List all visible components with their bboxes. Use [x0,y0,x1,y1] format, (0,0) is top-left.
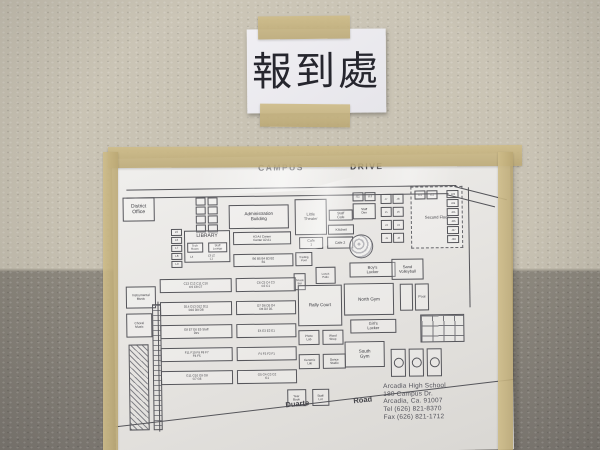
wood-shop-label: Wood Shop [329,334,337,341]
e-row-east-label: E4 E3 E2 E1 [255,329,277,333]
room-j26-label: J26 [451,220,455,223]
room-j8: J8 [392,194,403,204]
e-row-west-label: E8 E7 E6 E5 Staff Dev [183,328,209,335]
trading-post: Trading Post [295,252,312,266]
staff-cafe-label: Staff Cafe [336,211,346,219]
second-floor-block-label: Second Floor [424,215,449,220]
photo-lab-label: Photo Lab [305,334,313,341]
cafe-1-label: Cafe 1 [306,239,316,247]
portable-box [208,215,218,223]
room-j3-label: J3 [385,224,388,227]
room-l8: L8 [171,253,182,260]
school-info-block: Arcadia High School180 Campus Dr.Arcadia… [383,382,446,421]
room-j4: J4 [393,220,404,230]
room-j12-label: J12 [368,195,372,198]
room-j11-label: J11 [356,195,360,198]
map-road-line [112,378,514,428]
room-j27-label: J27 [451,229,455,232]
rally-court-label: Rally Court [308,303,332,308]
cafe-1: Cafe 1 [299,237,323,249]
room-j2: J2 [393,233,404,243]
portable-box [208,206,218,214]
room-l8-label: L8 [175,255,178,258]
f-row-west-label: F11 F10 F9 F8 F7 F6 F5 [184,351,210,358]
school-info-line: Fax (626) 821-1712 [384,413,447,422]
registration-sign-text: 報到處 [252,52,381,93]
room-j5-label: J5 [385,211,388,214]
g-row-east: G5 G4 G3 G2 G1 [237,369,297,384]
room-l7-label: L7 [175,247,178,250]
f-row-east-label: F4 F3 F2 F1 [256,352,278,356]
basketball-court [391,349,406,377]
ceramic-lab: Ceramic Lab [299,354,320,369]
boys-locker: Boy's Locker [349,262,395,278]
amphitheater [349,234,373,258]
c-row-east-label: C6 C5 C4 C3 C2 C1 [255,281,277,288]
portable-box [196,206,206,214]
administration-building-label: Administration Building [242,211,275,222]
portable-box [196,215,206,223]
masking-tape-sign-bottom [260,104,350,128]
room-j7: J7 [380,194,391,204]
room-j6: J6 [393,207,404,217]
school-info-line: Arcadia High School [383,382,446,391]
girls-locker-label: Girl's Locker [362,322,384,331]
room-j8-label: J8 [397,197,400,200]
little-theater: Little Theater [295,199,327,235]
sand-volleyball-label: Sand Volleyball [399,265,416,274]
b-row: B6 B5 B4 B3 B2 B1 [233,253,293,267]
rooms-l3-l2-l1: L3 L2 L1 [197,253,225,260]
room-j27: J27 [447,226,459,234]
room-j25-label: J25 [451,211,455,214]
tech-room-label: Tech Room [191,244,199,250]
room-l9-label: L9 [175,263,178,266]
rooms-l3-l2-l1-label: L3 L2 L1 [206,254,216,260]
dance-studio: Dance Studio [323,354,346,369]
boys-locker-label: Boy's Locker [361,265,383,274]
south-gym-label: South Gym [354,349,376,359]
room-j4-label: J4 [397,223,400,226]
a-row: A3 A4 Career Center A2 A1 [233,231,291,245]
cafe-2-label: Cafe 2 [335,241,346,245]
d-row-east: D7 D6 D5 D4 D3 D2 D1 [236,300,296,315]
staff-den: Staff Den [353,203,376,219]
room-j22: J22 [426,190,437,199]
f-row-east: F4 F3 F2 F1 [237,346,297,361]
street-label-road: Road [353,394,373,405]
g-row-east-label: G5 G4 G3 G2 G1 [256,373,278,380]
north-gym: North Gym [344,283,394,316]
lunch-patio-label: Lunch Patio [322,272,330,278]
district-office-label: District Office [129,204,148,215]
photo-lab: Photo Lab [298,330,319,345]
trading-post-label: Trading Post [299,256,308,262]
portable-box [208,197,218,205]
room-l6: L6 [171,237,182,244]
room-j24: J24 [447,199,459,207]
lunch-patio: Lunch Patio [315,267,335,284]
c-row-east: C6 C5 C4 C3 C2 C1 [236,277,296,292]
pool-west [400,284,413,311]
e-row-west: E8 E7 E6 E5 Staff Dev [160,324,232,339]
pool-label: Pool [418,295,425,299]
photo-of-wall: 報到處 District OfficeAdministration Buildi… [0,0,600,450]
dance-studio-label: Dance Studio [330,358,339,365]
room-j21: J21 [414,190,425,199]
snack-bar-label: Snack Bar [296,278,304,284]
campus-map-drawing: District OfficeAdministration BuildingLi… [112,153,514,450]
kitchen: Kitchen [328,224,354,234]
ceramic-lab-label: Ceramic Lab [304,358,315,365]
staff-lot-label: Staff Lot [318,394,324,401]
room-j24-label: J24 [450,202,454,205]
room-j28: J28 [447,235,459,243]
wood-shop: Wood Shop [322,330,343,345]
choral-music-label: Choral Music [134,322,144,329]
registration-sign-paper: 報到處 [247,29,387,114]
d-row-west-label: D14 D13 D12 D11 D10 D9 D8 [183,305,209,312]
staff-lounge: Staff Lounge [208,242,227,252]
south-gym: South Gym [345,341,385,368]
room-j6-label: J6 [397,210,400,213]
instrumental-music-label: Instrumental Music [132,294,150,301]
room-l4-label: L4 [190,256,193,259]
masking-tape-map-right [498,152,513,450]
rally-court: Rally Court [298,285,343,327]
administration-building: Administration Building [229,204,289,229]
e-row-east: E4 E3 E2 E1 [236,323,296,338]
campus-map-sheet: District OfficeAdministration BuildingLi… [112,153,514,450]
room-j3: J3 [381,220,392,230]
room-j28-label: J28 [451,238,455,241]
basketball-court [427,348,442,376]
tech-room: Tech Room [187,243,203,253]
d-row-east-label: D7 D6 D5 D4 D3 D2 D1 [255,304,277,311]
g-row-west: G11 G10 G9 G8 G7 G6 [161,370,233,385]
g-row-west-label: G11 G10 G9 G8 G7 G6 [184,374,210,381]
room-j2-label: J2 [397,236,400,239]
room-l9: L9 [171,261,182,268]
d-row-west: D14 D13 D12 D11 D10 D9 D8 [160,301,232,316]
masking-tape-sign-top [258,16,350,40]
room-l6-label: L6 [175,239,178,242]
staff-lounge-label: Staff Lounge [213,244,222,250]
room-j26: J26 [447,217,459,225]
portable-box [196,197,206,205]
basketball-court [409,348,424,376]
pool: Pool [415,283,429,310]
kitchen-label: Kitchen [335,228,347,232]
choral-music: Choral Music [126,313,152,337]
c-row-west: C13 C12 C11 C10 C9 C8 C7 [160,278,232,293]
staff-cafe: Staff Cafe [329,209,353,220]
masking-tape-map-left [103,152,118,450]
map-road-line [468,187,471,307]
a-row-label: A3 A4 Career Center A2 A1 [252,235,273,242]
street-label-duarte: Duarte [285,398,310,409]
room-j1-label: J1 [385,236,388,239]
f-row-west: F11 F10 F9 F8 F7 F6 F5 [161,347,233,362]
b-row-label: B6 B5 B4 B3 B2 B1 [252,257,274,264]
room-j5: J5 [381,207,392,217]
room-j7-label: J7 [385,198,388,201]
room-l5-label: L5 [175,231,178,234]
parking-lot [129,344,150,430]
little-theater-label: Little Theater [303,212,318,221]
map-road-line [126,185,456,191]
library-label: LIBRARY [193,233,221,239]
room-l5: L5 [171,229,182,236]
room-l7: L7 [171,245,182,252]
staff-den-label: Staff Den [360,208,368,215]
room-j1: J1 [381,233,392,243]
sand-volleyball: Sand Volleyball [391,258,423,279]
girls-locker: Girl's Locker [350,319,396,334]
c-row-west-label: C13 C12 C11 C10 C9 C8 C7 [183,282,209,289]
room-j25: J25 [447,208,459,216]
tennis-courts [420,314,464,343]
north-gym-label: North Gym [355,297,382,302]
district-office: District Office [122,197,154,221]
masking-tape-map-top [108,145,522,168]
room-l4: L4 [187,254,195,261]
